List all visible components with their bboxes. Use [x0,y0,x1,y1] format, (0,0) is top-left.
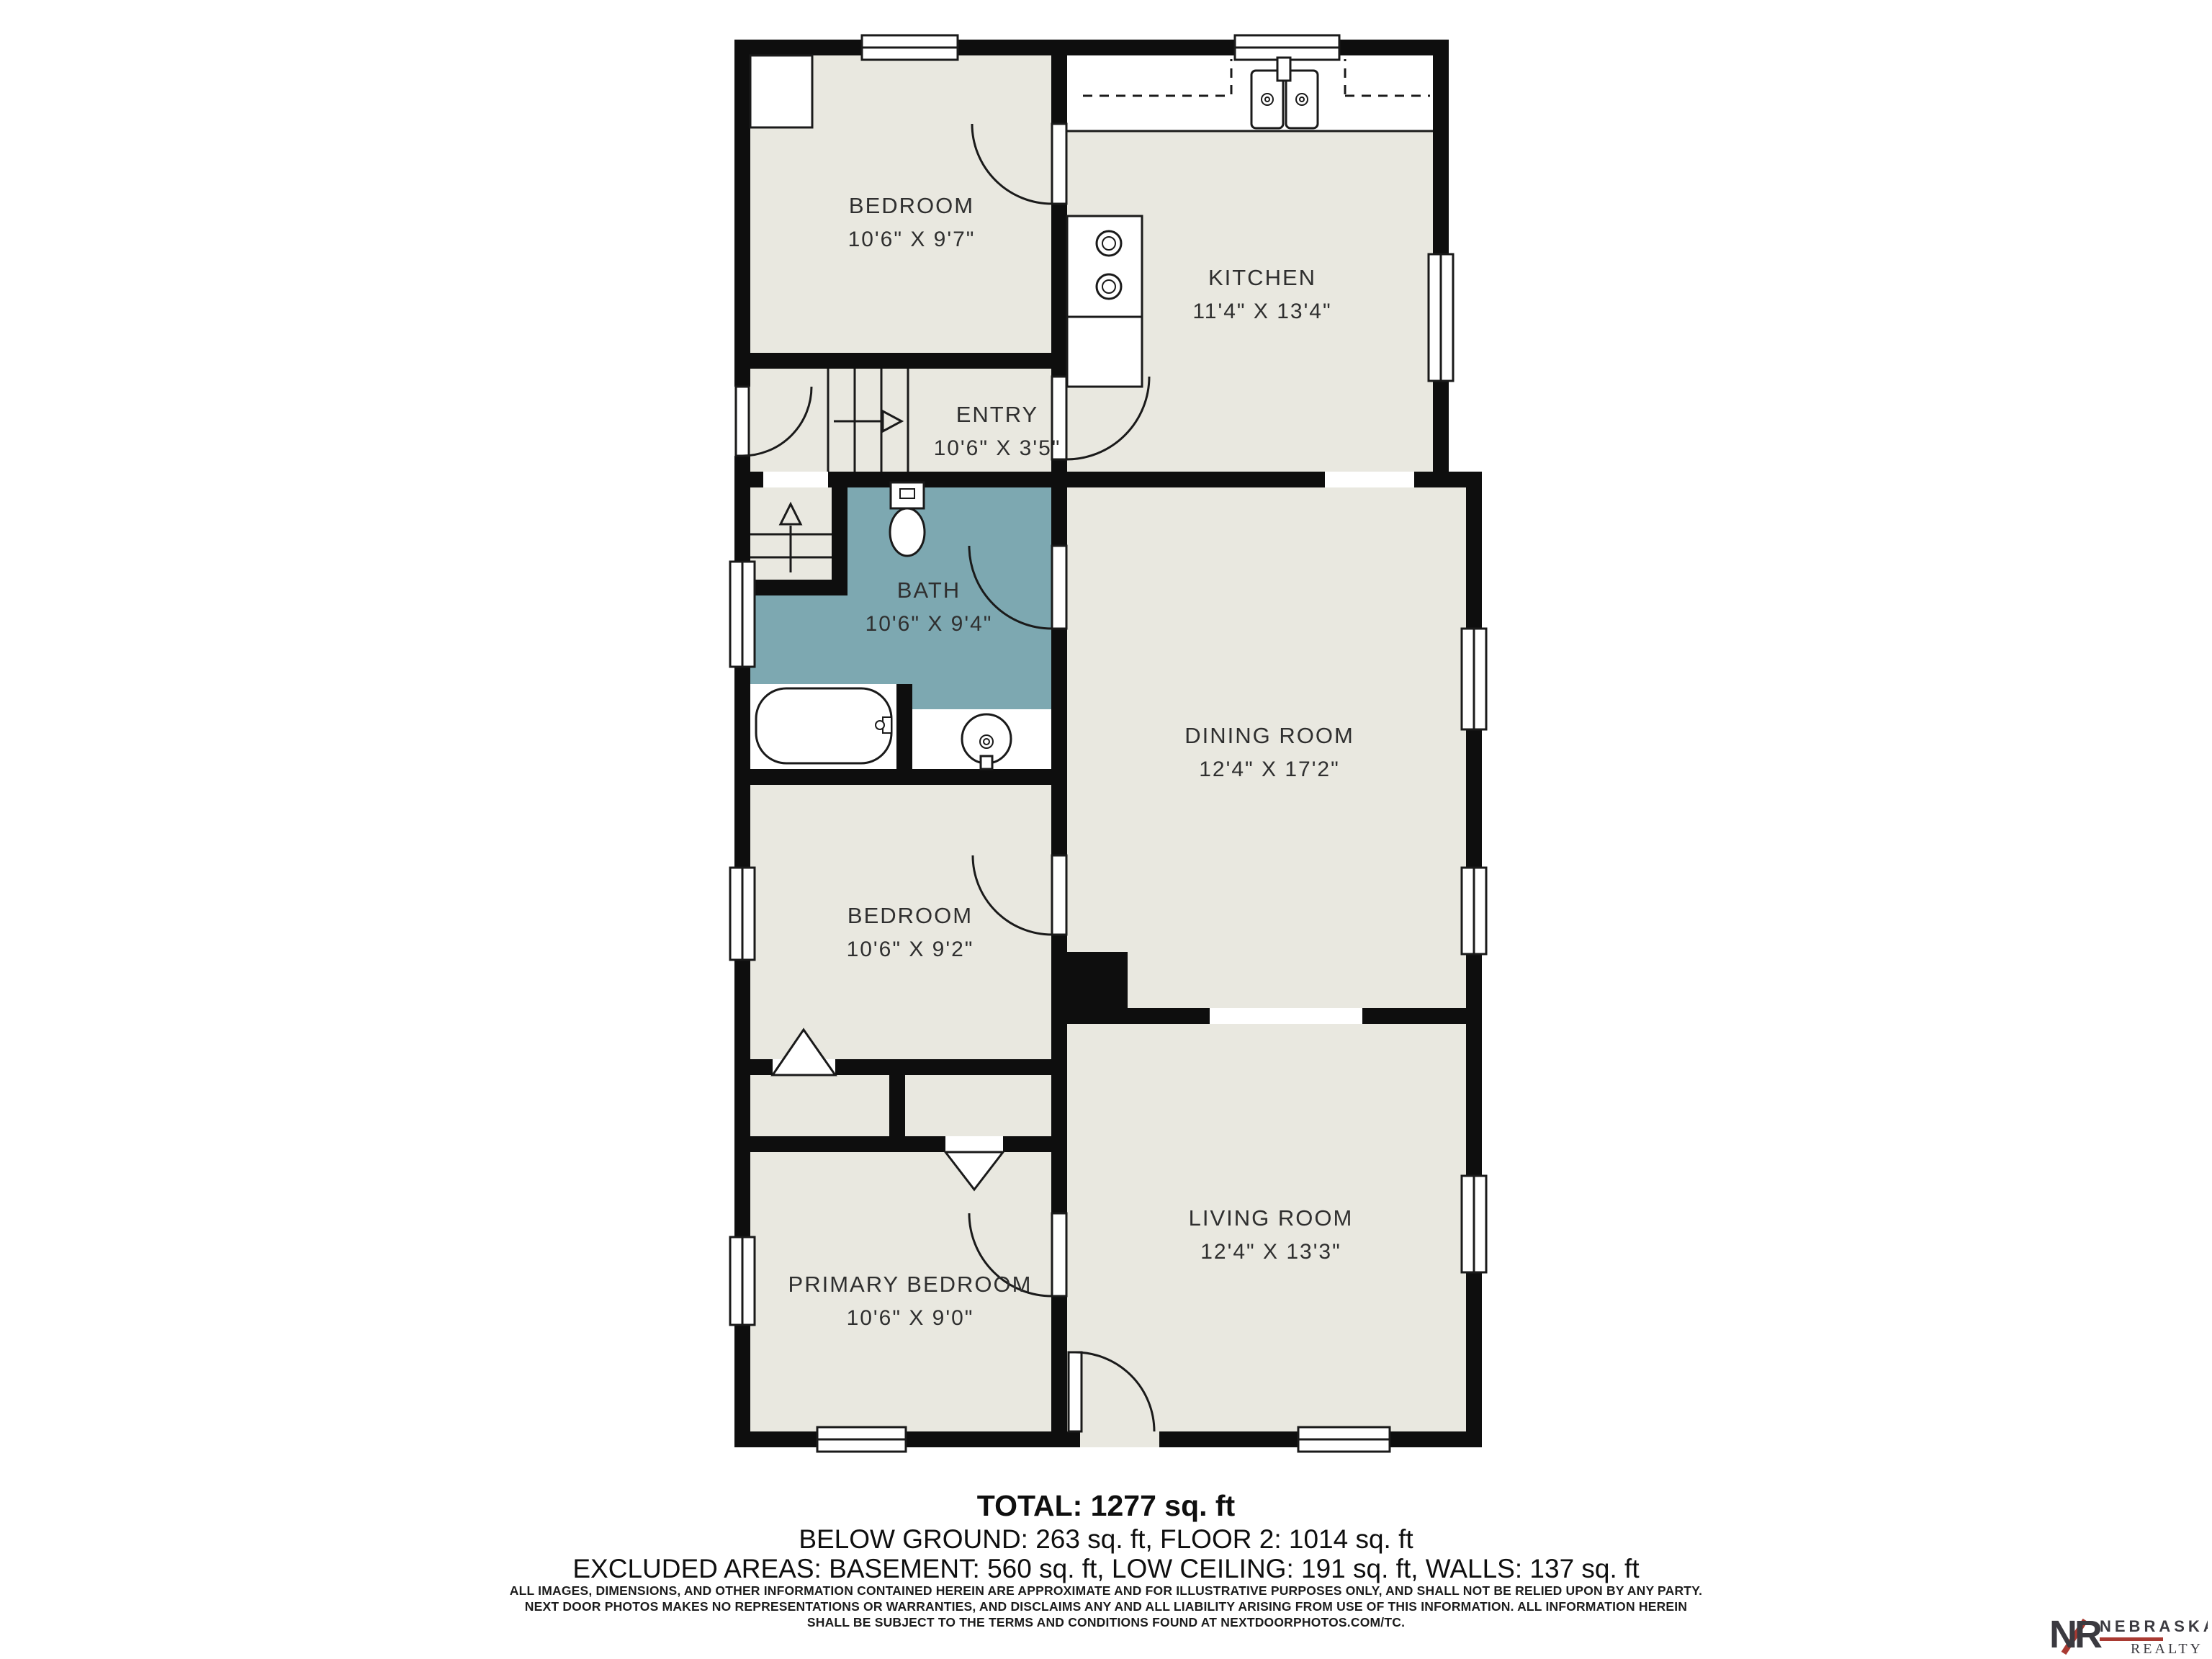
area-summary: TOTAL: 1277 sq. ft BELOW GROUND: 263 sq.… [0,1489,2212,1581]
total-area-text: TOTAL: 1277 sq. ft [0,1489,2212,1522]
window-kitchen-right [1429,254,1453,381]
floor-plan: BEDROOM 10'6" X 9'7" KITCHEN 11'4" X 13'… [0,0,2212,1659]
room-dims-bedroom2: 10'6" X 9'2" [847,938,974,961]
window-living-bottom [1298,1427,1390,1452]
room-label-entry: ENTRY [956,402,1039,427]
room-label-living: LIVING ROOM [1189,1205,1354,1231]
bedroom1-closet-notch [750,55,812,127]
room-label-bath: BATH [897,577,961,603]
room-label-kitchen: KITCHEN [1208,265,1316,290]
window-bath-left [730,562,755,667]
room-dims-living: 12'4" X 13'3" [1200,1240,1341,1264]
svg-text:NR: NR [2049,1613,2102,1656]
kitchen-counter [1067,55,1433,131]
area-breakdown-line2: EXCLUDED AREAS: BASEMENT: 560 sq. ft, LO… [0,1556,2212,1581]
window-bedroom1-top [862,35,958,60]
area-breakdown-line1: BELOW GROUND: 263 sq. ft, FLOOR 2: 1014 … [0,1527,2212,1552]
room-dims-bath: 10'6" X 9'4" [866,612,993,636]
stove-icon [1067,216,1142,387]
toilet-icon [890,482,925,556]
disclaimer-line1: ALL IMAGES, DIMENSIONS, AND OTHER INFORM… [0,1583,2212,1599]
room-dims-primary: 10'6" X 9'0" [847,1306,974,1330]
room-dims-entry: 10'6" X 3'5" [934,436,1061,460]
window-primary-bottom [817,1427,906,1452]
window-living-right [1462,1176,1486,1272]
room-label-bedroom1: BEDROOM [849,193,974,218]
room-dims-bedroom1: 10'6" X 9'7" [848,228,976,251]
room-label-dining: DINING ROOM [1184,723,1354,748]
disclaimer: ALL IMAGES, DIMENSIONS, AND OTHER INFORM… [0,1583,2212,1630]
room-dims-kitchen: 11'4" X 13'4" [1192,300,1331,323]
nr-monogram-icon: NR [2049,1613,2102,1656]
logo-subname-text: REALTY [2131,1641,2203,1657]
room-dims-dining: 12'4" X 17'2" [1199,757,1340,781]
logo-name-text: NEBRASKA [2100,1617,2208,1635]
window-primary-left [730,1237,755,1325]
window-kitchen-top [1235,35,1339,60]
nebraska-realty-logo: NR NEBRASKA REALTY [2049,1611,2208,1659]
window-dining-right-2 [1462,868,1486,954]
room-label-bedroom2: BEDROOM [848,903,973,928]
disclaimer-line2: NEXT DOOR PHOTOS MAKES NO REPRESENTATION… [0,1599,2212,1614]
window-dining-right-1 [1462,629,1486,729]
disclaimer-line3: SHALL BE SUBJECT TO THE TERMS AND CONDIT… [0,1614,2212,1630]
bathtub-icon [756,688,891,763]
room-label-primary: PRIMARY BEDROOM [788,1272,1033,1297]
window-bedroom2-left [730,868,755,960]
